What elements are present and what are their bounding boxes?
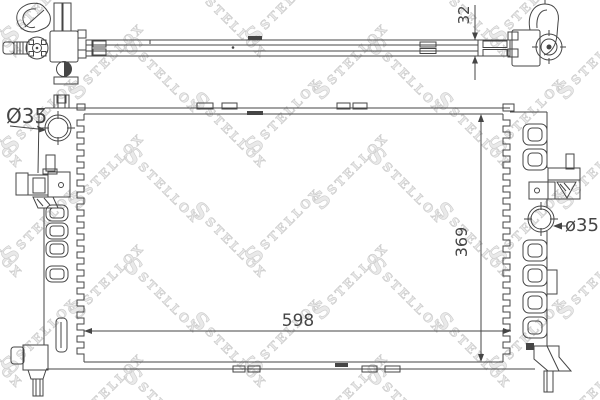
right-side-tab <box>547 270 557 294</box>
left-tank-edge <box>38 108 45 345</box>
rib-inner <box>50 244 64 254</box>
rib-outer <box>523 292 547 313</box>
rib-outer <box>523 240 547 261</box>
strip-detail <box>483 50 507 57</box>
left-pipe-diameter-callout: Ø35 <box>6 104 47 133</box>
drain-taper <box>28 370 46 379</box>
rib-outer <box>46 266 68 282</box>
rib-inner <box>528 244 542 257</box>
bracket-hole <box>59 183 64 188</box>
right-upper-mount-bracket <box>529 154 580 199</box>
core-right-serrated-edge <box>503 114 510 362</box>
rib-inner <box>528 269 542 282</box>
width-dimension: 598 <box>84 311 511 334</box>
core-top-notch <box>77 104 85 110</box>
left-channel <box>54 3 62 31</box>
bracket-body <box>534 346 571 371</box>
filler-neck-lines <box>58 95 65 108</box>
bracket-pin <box>544 371 553 392</box>
rib-inner <box>528 128 542 141</box>
bracket-mark <box>526 343 534 350</box>
filler-neck <box>54 95 69 108</box>
depth-dimension: 32 <box>455 5 478 80</box>
right-pipe-leader-arrow <box>553 223 562 230</box>
bracket-funnel <box>557 182 576 198</box>
rib-inner <box>528 153 542 166</box>
rib-inner <box>50 269 64 279</box>
core-top-bar <box>247 111 263 115</box>
height-dimension: 369 <box>452 114 484 362</box>
rib-outer <box>523 317 547 338</box>
top-view: 32 <box>3 0 566 103</box>
rib-outer <box>46 205 68 221</box>
drain-pipe-lines <box>36 379 40 396</box>
radiator-technical-drawing: 32 <box>0 0 600 400</box>
rib-outer <box>523 149 547 170</box>
rib-outer <box>523 265 547 286</box>
rib-inner <box>528 321 542 334</box>
left-channel <box>63 3 71 31</box>
top-view-strip-inner-lines <box>86 45 478 51</box>
right-pipe-end-center <box>547 45 552 50</box>
core-bottom-bar <box>335 363 348 367</box>
bracket-hole <box>535 188 540 193</box>
right-fitting-nub <box>508 32 518 40</box>
bracket-plate <box>529 182 555 199</box>
right-pipe-diameter-label: ø35 <box>565 215 599 236</box>
rib-inner <box>50 226 64 236</box>
right-lower-mount-bracket <box>526 343 571 392</box>
left-lower-port-fill <box>64 62 72 77</box>
strip-dot <box>232 46 235 49</box>
left-fitting-nub <box>78 50 86 58</box>
bracket-diagonal-piece <box>33 197 58 208</box>
rib-outer <box>523 124 547 145</box>
drain-cap <box>11 347 24 364</box>
front-view: 369 598 Ø35 ø35 <box>6 95 599 396</box>
rib-outer <box>46 241 68 257</box>
bracket-pin <box>566 154 574 169</box>
top-view-right-fitting <box>508 0 566 66</box>
left-inlet-pipe-inner <box>48 118 68 138</box>
strip-top-bump <box>248 36 262 40</box>
height-dimension-label: 369 <box>452 227 471 258</box>
bracket-left-block <box>16 173 28 195</box>
rib-inner <box>528 296 542 309</box>
depth-dimension-arrows <box>472 33 478 64</box>
left-tank-ribs <box>46 205 68 282</box>
top-view-strip-dividers <box>92 40 510 56</box>
width-dimension-label: 598 <box>282 311 314 331</box>
valve-lug <box>29 40 34 45</box>
left-lower-plate <box>54 77 78 84</box>
strip-detail <box>93 49 106 55</box>
right-outlet-pipe-inner <box>531 209 551 229</box>
bracket-mid-inner <box>33 178 45 193</box>
drain-fitting <box>11 345 48 396</box>
valve-wheel-center <box>36 47 39 50</box>
right-outlet-ticks <box>524 202 558 236</box>
left-cylinder-ribs <box>17 42 23 54</box>
radiator-diagram-page: SSTELLOXSSTELLOXSSTELLOXSSTELLOXSSTELLOX… <box>0 0 600 400</box>
depth-dimension-label: 32 <box>455 5 473 24</box>
left-fitting-block <box>50 31 78 62</box>
right-tank <box>523 112 580 392</box>
left-hook-inner <box>23 9 44 28</box>
left-tank <box>11 95 75 396</box>
top-view-left-fitting <box>3 3 86 103</box>
drain-block <box>23 345 48 370</box>
strip-detail <box>483 41 507 48</box>
left-fitting-nub <box>78 30 86 38</box>
rib-inner <box>50 208 64 218</box>
left-mount-bracket <box>16 155 70 208</box>
strip-detail <box>93 41 106 47</box>
valve-lug <box>29 52 34 57</box>
rib-outer <box>46 223 68 239</box>
left-pipe-diameter-label: Ø35 <box>6 104 47 128</box>
core-left-serrated-edge <box>77 114 84 362</box>
left-cylinder-cap <box>3 42 14 54</box>
right-pipe-diameter-callout: ø35 <box>553 215 599 236</box>
drain-pipe <box>33 379 43 396</box>
